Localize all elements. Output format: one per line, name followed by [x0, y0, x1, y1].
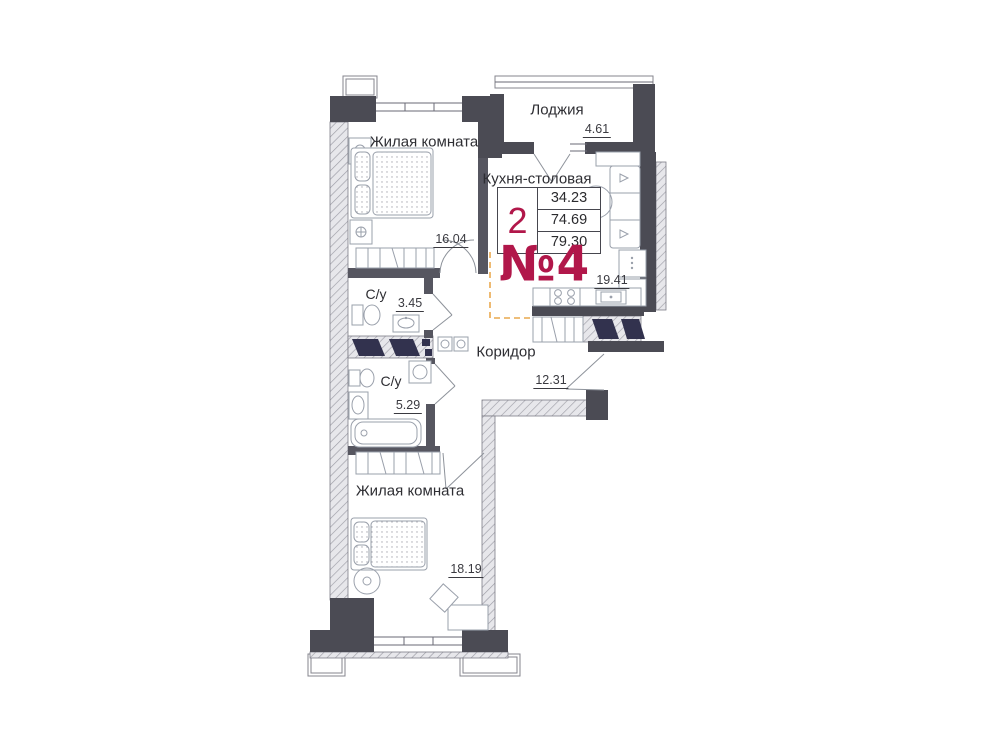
- floor-plan: Лоджия 4.61 Жилая комната 16.04 Кухня-ст…: [0, 0, 1000, 750]
- plant-stand-icon: [350, 220, 372, 244]
- room-label-bathroom-1: С/у: [366, 286, 387, 302]
- room-area-living-room-2: 18.19: [448, 562, 483, 578]
- toilet2-icon: [349, 369, 374, 387]
- room-area-kitchen-dining: 19.41: [594, 273, 629, 289]
- bathtub-icon: [351, 419, 421, 447]
- loggia-top-rail: [495, 76, 653, 88]
- entrance-door: [566, 354, 604, 390]
- bathroom1-door: [433, 294, 452, 330]
- room-area-bathroom-2: 5.29: [394, 398, 422, 414]
- floor-plan-svg: [0, 0, 1000, 750]
- wardrobe2-icon: [356, 452, 440, 474]
- bed-icon: [351, 148, 433, 218]
- sink2-icon: [349, 392, 368, 419]
- balcony-top-left: [343, 76, 377, 98]
- bed2-icon: [351, 518, 427, 570]
- toilet-icon: [352, 305, 380, 325]
- hall-cabinet-icon: [533, 317, 583, 342]
- stamp-living-area: 34.23: [538, 188, 600, 210]
- room-label-corridor: Коридор: [476, 344, 535, 361]
- room-label-loggia: Лоджия: [530, 102, 583, 119]
- room-label-bathroom-2: С/у: [381, 373, 402, 389]
- room-label-living-room-1: Жилая комната: [370, 134, 478, 151]
- sofa-icon: [596, 152, 640, 248]
- washing-machine-icon: [409, 361, 431, 383]
- apartment-number: №4: [499, 240, 590, 289]
- desk-icon: [430, 584, 488, 630]
- room-label-kitchen-dining: Кухня-столовая: [483, 171, 592, 188]
- sink-icon: [393, 315, 419, 332]
- stamp-area: 74.69: [538, 210, 600, 232]
- floor-lamp-icon: [354, 568, 380, 594]
- room-label-living-room-2: Жилая комната: [356, 483, 464, 500]
- wardrobe-icon: [356, 248, 434, 268]
- room-area-corridor: 12.31: [533, 373, 568, 389]
- room-area-loggia: 4.61: [583, 122, 611, 138]
- bathroom2-door: [435, 364, 455, 404]
- washer-dryer-icons: [438, 337, 468, 351]
- kitchen-sink-icon: [596, 290, 626, 304]
- room-area-living-room-1: 16.04: [433, 232, 468, 248]
- room-area-bathroom-1: 3.45: [396, 296, 424, 312]
